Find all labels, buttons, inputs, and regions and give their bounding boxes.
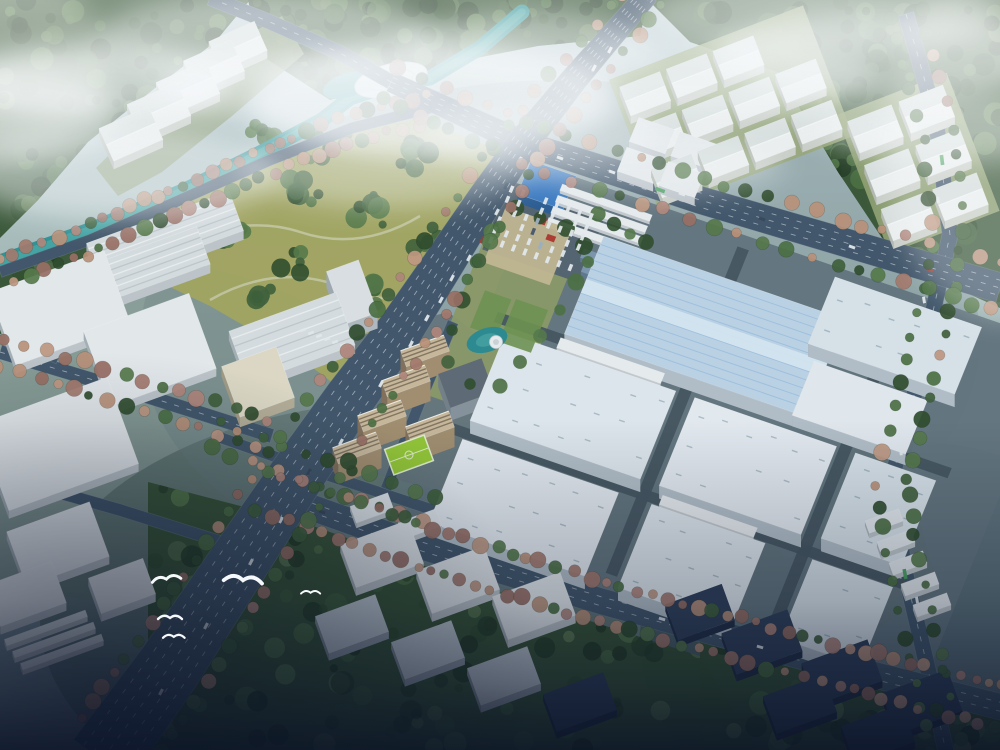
masterplan-image (0, 0, 1000, 750)
aerial-render (0, 0, 1000, 750)
